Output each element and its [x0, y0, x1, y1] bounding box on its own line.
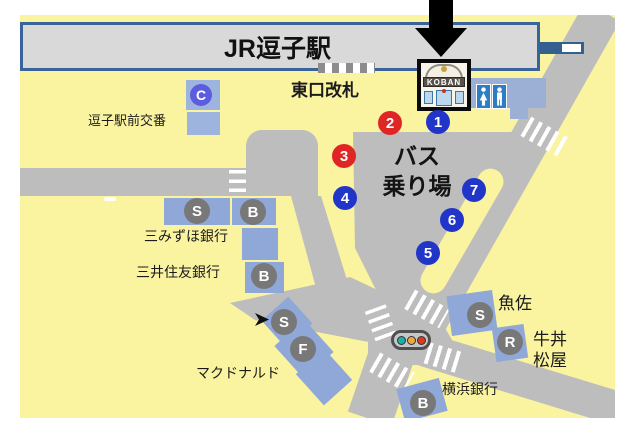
bus-stop-3: 3	[332, 144, 356, 168]
badge-s-uosa: S	[467, 302, 493, 328]
badge-b-smbc: B	[251, 263, 277, 289]
label-police-box: 逗子駅前交番	[88, 110, 166, 129]
koban-emblem	[441, 66, 447, 72]
crosswalk-west	[229, 170, 246, 194]
label-matsuya-line2: 松屋	[533, 350, 567, 371]
building-mid	[242, 228, 278, 260]
label-matsuya-line1: 牛丼	[533, 329, 567, 350]
label-smbc-bank: 三井住友銀行	[136, 262, 220, 282]
koban-strip-tab	[510, 108, 528, 119]
koban-icon: KOBAN	[417, 59, 471, 111]
label-yokohama-bank: 横浜銀行	[442, 379, 498, 399]
bus-stop-4: 4	[333, 186, 357, 210]
map-canvas: JR逗子駅 KOBAN	[20, 15, 615, 418]
station-title: JR逗子駅	[170, 29, 385, 65]
koban-lamp	[442, 89, 446, 93]
badge-b-yokohama: B	[410, 390, 436, 416]
label-east-gate: 東口改札	[291, 76, 359, 101]
badge-s-mizuho: S	[184, 198, 210, 224]
koban-sign: KOBAN	[423, 77, 465, 87]
traffic-light-teal	[397, 336, 406, 345]
label-matsuya: 牛丼 松屋	[533, 329, 567, 371]
traffic-light-amber	[407, 336, 416, 345]
koban-window-left	[424, 91, 433, 104]
traffic-light-icon	[391, 330, 431, 350]
badge-b-mizuho: B	[240, 199, 266, 225]
traffic-light-red	[417, 336, 426, 345]
label-bus-area: バス 乗り場	[372, 141, 462, 201]
bus-stop-1: 1	[426, 110, 450, 134]
badge-f-mcdonalds: F	[290, 336, 316, 362]
zushi-station-map: JR逗子駅 KOBAN	[0, 0, 629, 430]
rail-bar-window	[562, 44, 581, 52]
koban-window-right	[455, 91, 464, 104]
label-mizuho-bank: 三みずほ銀行	[144, 226, 228, 246]
label-uosa: 魚佐	[498, 289, 532, 314]
lane-dash	[104, 197, 116, 201]
bus-stop-5: 5	[416, 241, 440, 265]
badge-r-matsuya: R	[497, 329, 523, 355]
restroom-icon-female	[476, 84, 491, 109]
label-bus-area-line1: バス	[372, 141, 462, 171]
badge-s-mcdonalds: S	[271, 309, 297, 335]
badge-c-police: C	[190, 84, 212, 106]
police-box-building-2	[187, 112, 220, 135]
ticket-gate-hatch	[318, 63, 375, 73]
bus-stop-2: 2	[378, 111, 402, 135]
bus-stop-7: 7	[462, 178, 486, 202]
bus-stop-6: 6	[440, 208, 464, 232]
label-mcdonalds: マクドナルド	[196, 363, 280, 383]
label-bus-area-line2: 乗り場	[372, 171, 462, 201]
restroom-icon-male	[492, 84, 507, 109]
